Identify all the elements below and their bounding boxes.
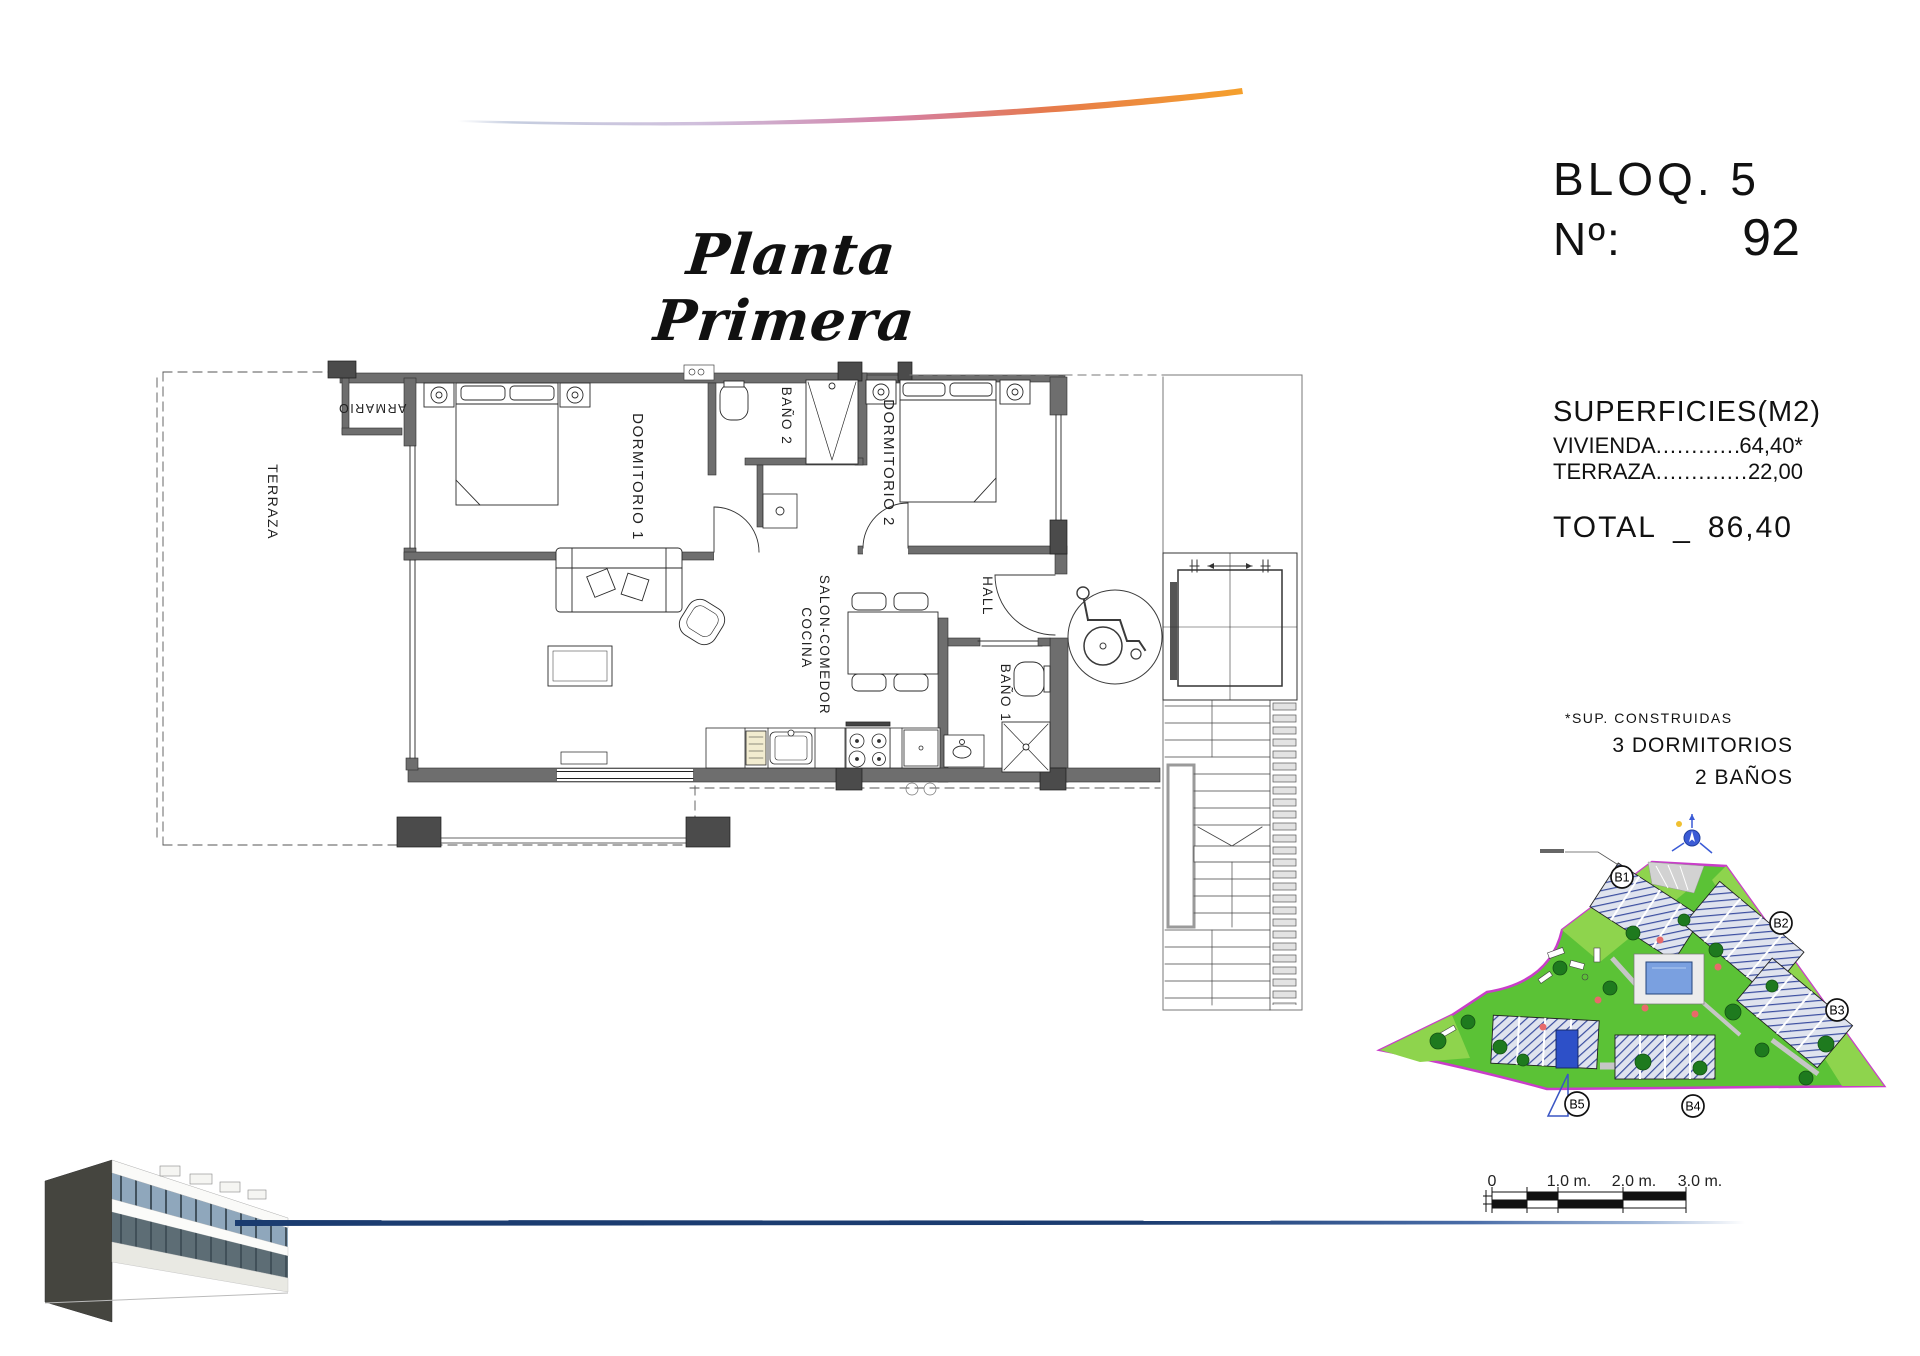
elevator <box>1163 553 1297 700</box>
block-info: BLOQ. 5 Nº: 92 <box>1553 152 1800 268</box>
highlighted-unit <box>1556 1030 1578 1068</box>
superficies-panel: SUPERFICIES(M2) VIVIENDA................… <box>1553 396 1803 545</box>
block-label: BLOQ. 5 <box>1553 152 1800 206</box>
superficies-row-vivienda: VIVIENDA................64,40* <box>1553 433 1803 459</box>
bathrooms-note: 2 BAÑOS <box>1553 766 1793 790</box>
room-label-dormitorio2: DORMITORIO 2 <box>880 399 897 527</box>
total-separator: _ <box>1673 511 1692 545</box>
scale-label-1: 1.0 m. <box>1547 1173 1591 1190</box>
block-badge-label: B3 <box>1829 1004 1844 1018</box>
dot-leader: ................ <box>1656 433 1740 459</box>
block-badge-b3: B3 <box>1826 999 1848 1021</box>
coffee-table <box>548 646 612 686</box>
bedrooms-note: 3 DORMITORIOS <box>1553 734 1793 758</box>
kitchen-counter <box>706 722 940 795</box>
b1-leader-line <box>1565 852 1620 866</box>
scale-bar: 0 1.0 m. 2.0 m. 3.0 m. <box>1483 1173 1722 1213</box>
dot-leader: .............. <box>1656 459 1748 485</box>
site-plan: B1 B2 B3 B4 B5 <box>1380 814 1884 1117</box>
total-value: 86,40 <box>1708 511 1793 545</box>
room-label-dormitorio1: DORMITORIO 1 <box>629 413 646 541</box>
b1-leader-note <box>1540 849 1564 853</box>
row-value: 22,00 <box>1748 459 1803 485</box>
sofa <box>556 548 682 612</box>
terrace-railing <box>440 838 688 843</box>
site-pool <box>1634 954 1704 1004</box>
room-label-terraza: TERRAZA <box>265 464 281 540</box>
stairs <box>1165 700 1298 1010</box>
unit-number-label: Nº: <box>1553 212 1622 266</box>
compass-icon <box>1672 814 1712 853</box>
superficies-total-row: TOTAL_86,40 <box>1553 511 1793 545</box>
scale-label-2: 2.0 m. <box>1612 1173 1656 1190</box>
unit-number-value: 92 <box>1742 208 1800 268</box>
block-badge-b5: B5 <box>1565 1092 1589 1116</box>
room-label-salon: SALON-COMEDOR <box>817 575 832 715</box>
notes-panel: *SUP. CONSTRUIDAS 3 DORMITORIOS 2 BAÑOS <box>1553 710 1793 790</box>
room-label-hall: HALL <box>980 576 995 616</box>
row-value: 64,40* <box>1739 433 1803 459</box>
room-label-armario: ARMARIO <box>338 401 407 415</box>
block-badge-label: B4 <box>1685 1100 1700 1114</box>
block-badge-label: B2 <box>1773 917 1788 931</box>
room-label-bano1: BAÑO 1 <box>998 664 1013 723</box>
block-badge-label: B1 <box>1614 871 1629 885</box>
wheelchair-icon <box>1068 587 1162 684</box>
page-title: Planta Primera <box>591 222 985 354</box>
block-badge-label: B5 <box>1569 1098 1584 1112</box>
block-badge-b1: B1 <box>1611 866 1633 888</box>
superficies-row-terraza: TERRAZA..............22,00 <box>1553 459 1803 485</box>
dining-set <box>848 593 938 691</box>
room-label-bano2: BAÑO 2 <box>779 387 794 446</box>
bottom-rule <box>235 1220 1745 1226</box>
row-label: TERRAZA <box>1553 459 1656 485</box>
header-swoosh <box>458 88 1243 125</box>
vent-icon <box>684 365 714 380</box>
block-badge-b4: B4 <box>1682 1095 1704 1117</box>
bed-dorm1 <box>424 383 590 505</box>
row-label: VIVIENDA <box>1553 433 1656 459</box>
superficies-heading: SUPERFICIES(M2) <box>1553 396 1803 429</box>
block-badge-b2: B2 <box>1770 912 1792 934</box>
floor-plan: TERRAZA ARMARIO DORMITORIO 1 BAÑO 2 DORM… <box>157 361 1302 1010</box>
scale-label-3: 3.0 m. <box>1678 1173 1722 1190</box>
footnote: *SUP. CONSTRUIDAS <box>1565 710 1793 726</box>
building-render <box>45 1160 288 1322</box>
armchair <box>674 594 729 649</box>
total-label: TOTAL <box>1553 511 1657 545</box>
room-label-cocina: COCINA <box>799 607 814 669</box>
bathroom1-fixtures <box>944 662 1050 772</box>
